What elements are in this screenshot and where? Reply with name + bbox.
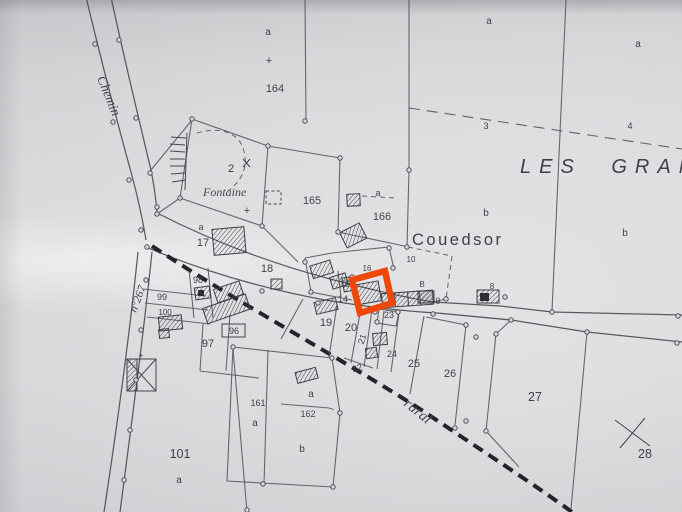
- parcel-label-10: 10: [407, 255, 416, 264]
- parcel-label-17: 17: [197, 237, 209, 249]
- road-lines: [86, 0, 682, 512]
- parcel-label-98: 98: [193, 275, 203, 285]
- parcel-label-27: 27: [528, 390, 542, 404]
- subdiv-letter-a: a: [198, 222, 203, 232]
- parcel-label-96: 96: [229, 326, 239, 336]
- place-name-les-grandes: LES GRAN: [520, 156, 682, 178]
- subdiv-letter-b: b: [299, 444, 305, 455]
- parcel-label-21: 21: [356, 333, 369, 346]
- parcel-label-164: 164: [266, 83, 284, 95]
- parcel-label-23: 23: [384, 310, 394, 320]
- subdiv-letter-a: a: [265, 27, 271, 38]
- parcel-label-26: 26: [444, 368, 456, 380]
- subdiv-letter-a: a: [308, 389, 314, 400]
- subdiv-letter-a: a: [486, 16, 492, 27]
- parcel-label-101: 101: [170, 447, 191, 461]
- subdiv-letter-a: a: [375, 188, 380, 198]
- boundary-cross-2: [243, 159, 250, 167]
- road-name-chemin: Chemin: [94, 74, 124, 119]
- parcel-label-162: 162: [300, 409, 315, 419]
- subdiv-letter-b: b: [622, 228, 628, 239]
- parcel-label-161: 161: [250, 398, 265, 408]
- map-canvas[interactable]: LES GRAN Couedsor Fontaine Chemin n°267 …: [0, 0, 682, 512]
- parcel-label-4: 4: [627, 121, 632, 131]
- parcel-label-3: 3: [483, 121, 488, 131]
- cadastral-map-photo[interactable]: LES GRAN Couedsor Fontaine Chemin n°267 …: [0, 0, 682, 512]
- parcel-label-2: 2: [228, 163, 234, 175]
- place-name-couedsor: Couedsor: [412, 231, 504, 249]
- parcel-label-25: 25: [408, 358, 420, 370]
- parcel-boundaries: [143, 0, 587, 512]
- parcel-label-97: 97: [202, 338, 214, 350]
- parcel-label-9: 9: [435, 296, 440, 306]
- parcel-label-19: 19: [320, 317, 332, 329]
- plus-mark: +: [266, 55, 272, 67]
- subdiv-letter-B: B: [419, 280, 424, 289]
- subdiv-letter-a: a: [176, 475, 182, 486]
- parcel-label-100: 100: [158, 308, 172, 317]
- place-name-fontaine: Fontaine: [202, 185, 247, 199]
- parcel-label-24: 24: [387, 349, 397, 359]
- parcel-label-20: 20: [345, 322, 357, 334]
- plus-mark: +: [139, 351, 144, 360]
- crossed-building: [127, 359, 156, 391]
- parcel-label-14: 14: [338, 294, 348, 304]
- parcel-label-166: 166: [373, 211, 391, 223]
- subdiv-letter-b: b: [483, 208, 489, 219]
- parcel-label-8: 8: [490, 282, 495, 291]
- labels: LES GRAN Couedsor Fontaine Chemin n°267 …: [94, 16, 682, 486]
- parcel-label-165: 165: [303, 195, 321, 207]
- boundary-cross-28: [615, 418, 650, 448]
- parcel-label-99: 99: [157, 292, 167, 302]
- parcel-label-16: 16: [363, 264, 372, 273]
- plus-mark: +: [244, 205, 250, 217]
- subdiv-letter-a: a: [252, 418, 258, 429]
- parcel-label-28: 28: [638, 447, 652, 461]
- road-name-rural: rural: [400, 396, 434, 428]
- subdiv-letter-a: a: [635, 39, 641, 50]
- parcel-label-15: 15: [340, 279, 350, 289]
- parcel-label-18: 18: [261, 263, 273, 275]
- spring-symbol: [170, 133, 187, 190]
